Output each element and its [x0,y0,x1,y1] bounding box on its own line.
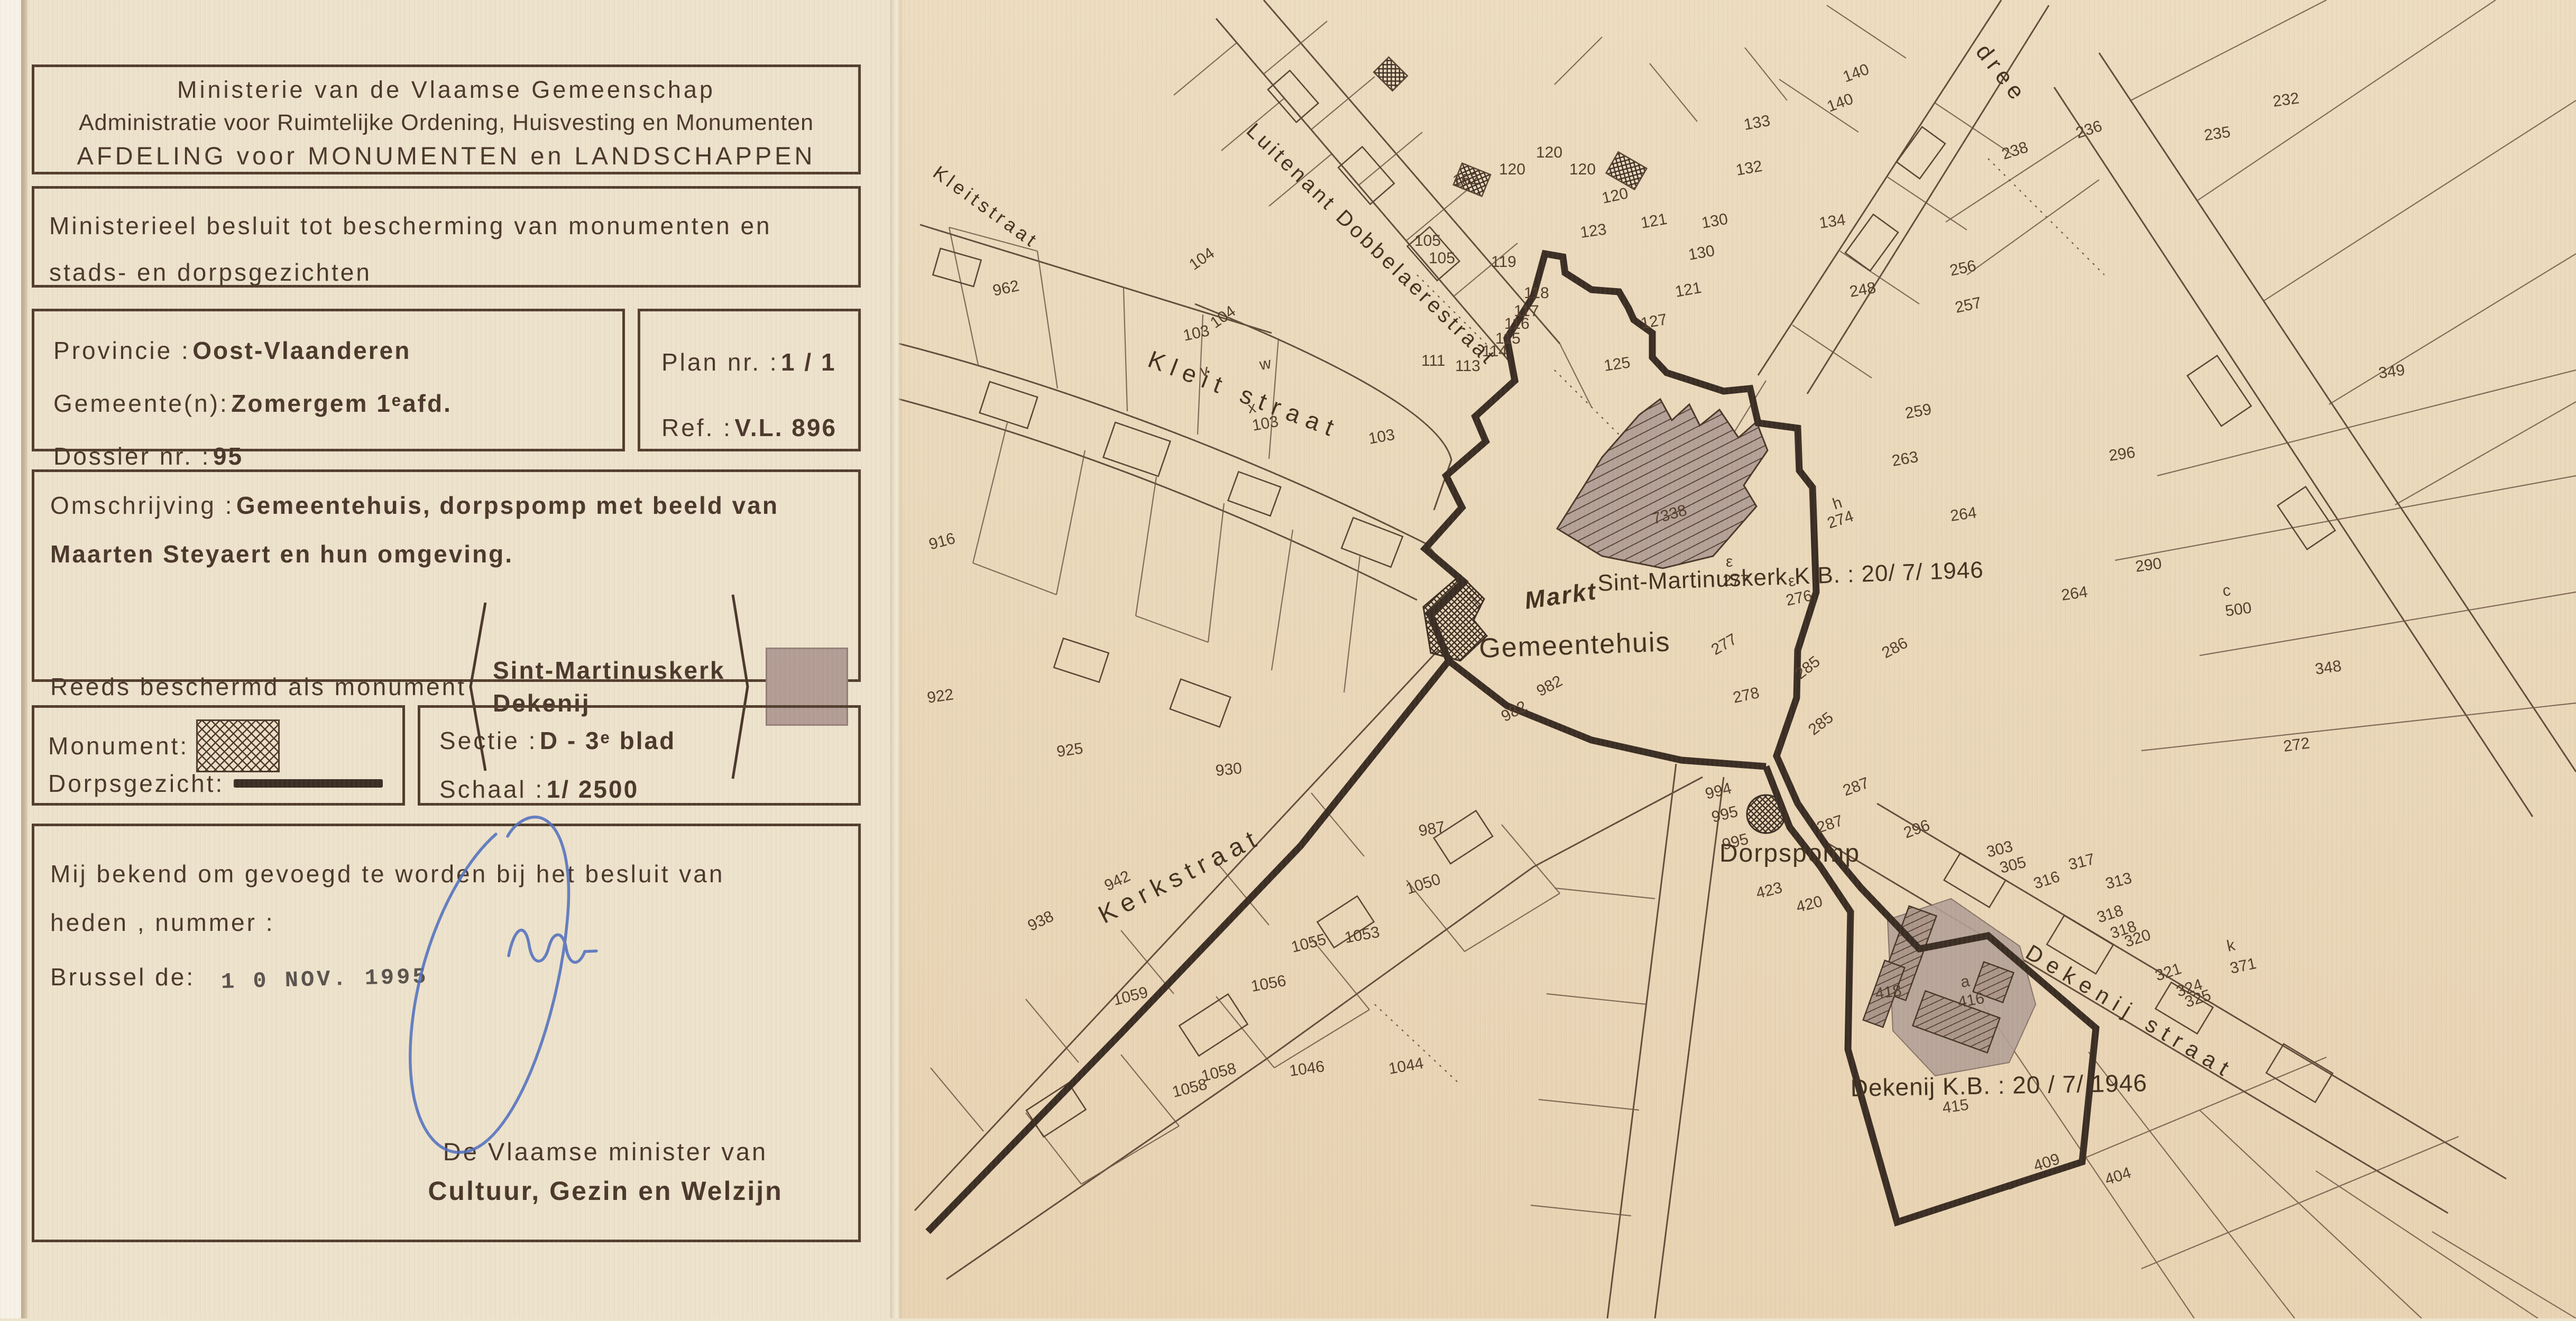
administration-title: Administratie voor Ruimtelijke Ordening,… [34,106,858,139]
ministry-title: Ministerie van de Vlaamse Gemeenschap [34,73,858,106]
parcel-number: 121 [1673,279,1703,301]
parcel-number: 132 [1734,158,1763,179]
map-label: Dorpspomp [1719,839,1860,867]
sectie-value: D - 3ᵉ blad [540,727,676,754]
cadastral-map: 916922925930103103103vwx9621041041621201… [899,0,2576,1318]
map-label: dree [1971,39,2032,108]
parcel-number: 316 [2031,868,2062,893]
parcel-number: 1046 [1288,1058,1326,1080]
municipality-label: Gemeente(n): [53,390,229,417]
parcel-number: 287 [1815,812,1845,837]
parcel-number: 995 [1710,803,1740,826]
province-label: Provincie : [53,337,190,364]
parcel-number: 278 [1732,684,1761,707]
parcel-number: 925 [1055,740,1084,761]
parcel-number: 120 [1536,144,1562,161]
parcel-number: 120 [1569,161,1596,178]
parcel-number: 348 [2314,657,2342,678]
parcel-number: 111 [1421,352,1446,369]
scanned-decree-map: 916922925930103103103vwx9621041041621201… [0,0,2576,1318]
description-value-line1: Gemeentehuis, dorpspomp met beeld van [236,492,779,519]
parcel-number: 120 [1600,184,1630,207]
parcel-number: 118 [1524,284,1549,302]
ref-label: Ref. : [661,414,732,441]
description-label: Omschrijving : [50,492,234,519]
schaal-value: 1/ 2500 [547,775,639,803]
parcel-number: 140 [1825,90,1855,115]
parcel-number: 930 [1215,760,1243,780]
parcel-number: 103 [1182,322,1211,345]
parcel-number: 125 [1603,354,1631,375]
parcel-number: 104 [1186,244,1218,274]
parcel-number: 257 [1954,294,1983,317]
parcel-number: 287 [1841,774,1871,799]
parcel-number: 248 [1848,279,1877,301]
parcel-number: 123 [1579,220,1607,242]
parcel-number: 371 [2229,955,2258,977]
dorpsgezicht-line-swatch [234,779,383,788]
parcel-number: 238 [2000,138,2030,163]
signature-box: Mij bekend om gevoegd te worden bij het … [32,824,861,1242]
parcel-number: 321 [2153,960,2184,985]
parcel-number: 103 [1367,426,1396,448]
parcel-number: 1058 [1171,1076,1209,1101]
parcel-number: 277 [1708,630,1740,659]
map-label: Kleitstraat [929,161,1043,253]
parcel-number: 162 [1452,170,1480,190]
parcel-number: 1056 [1249,972,1287,995]
parcel-number: 119 [1491,253,1516,271]
monument-hatch-swatch [196,719,280,772]
parcel-number: 962 [991,277,1021,300]
church-monument-hatch [1557,399,1768,568]
minister-line1: De Vlaamse minister van [362,1137,849,1166]
parcel-number: 105 [1429,250,1455,267]
parcel-number: w [1258,355,1273,374]
parcel-number: 120 [1499,161,1525,178]
parcel-number: c [2221,581,2231,600]
parcel-number: 235 [2203,123,2231,144]
decree-box: Ministerieel besluit tot bescherming van… [32,186,861,288]
parcel-number: 317 [2067,851,2097,874]
map-label: Gemeentehuis [1478,626,1671,664]
sectie-schaal-box: Sectie : D - 3ᵉ blad Schaal : 1/ 2500 [418,705,861,806]
protected-item-1: Sint-Martinuskerk [493,654,725,687]
parcel-number: 285 [1805,709,1837,739]
dorpsgezicht-boundary-south [1449,661,1766,766]
parcel-number: 420 [1795,893,1825,916]
buildings [933,57,2335,1137]
parcel-number: h [1830,494,1844,513]
parcel-number: 994 [1704,780,1734,803]
parcel-number: 263 [1890,448,1919,470]
map-labels: KleitstraatKleit straatLuitenant Dobbela… [929,39,2239,1102]
parcel-number: 272 [2282,734,2311,755]
parcel-number: 404 [2103,1164,2133,1189]
parcel-number: 296 [2108,444,2136,465]
parcel-number: 121 [1639,210,1668,232]
plan-label: Plan nr. : [661,348,779,376]
dossier-value: 95 [213,442,243,470]
parcel-number: 922 [926,686,954,707]
parcel-number: 500 [2224,599,2252,620]
cadastral-map-svg: 916922925930103103103vwx9621041041621201… [899,0,2576,1318]
map-label: Dekenij K.B. : 20 / 7/ 1946 [1850,1069,2147,1102]
monument-legend-label: Monument: [48,732,189,760]
parcel-number: 313 [2104,870,2134,893]
parcel-number: 418 [1874,982,1902,1003]
parcel-number: 232 [2271,89,2300,110]
description-box: Omschrijving : Gemeentehuis, dorpspomp m… [32,469,861,682]
date-stamp: 1 0 NOV. 1995 [220,964,429,995]
parcel-number: 130 [1700,210,1729,232]
decree-line1: Ministerieel besluit tot bescherming van… [49,202,858,249]
description-value-line2: Maarten Steyaert en hun omgeving. [50,540,513,568]
parcel-number: 104 [1207,302,1239,332]
parcel-number: 286 [1879,634,1911,662]
map-label: Kleit straat [1144,345,1344,444]
parcel-number: 236 [2074,117,2104,142]
parcel-number: 130 [1687,242,1716,264]
header-box: Ministerie van de Vlaamse Gemeenschap Ad… [32,64,861,174]
parcel-number: k [2225,936,2238,955]
brussel-label: Brussel de: [50,963,195,991]
title-block-panel: Ministerie van de Vlaamse Gemeenschap Ad… [0,0,899,1318]
parcel-number: 256 [1948,257,1978,280]
dorpsgezicht-legend-label: Dorpsgezicht: [48,769,224,798]
parcel-number: 938 [1025,908,1056,935]
parcel-number: 264 [1949,504,1977,525]
paper-fold-crease [890,0,902,1318]
dossier-label: Dossier nr. : [53,442,210,470]
map-legend-box: Monument: Dorpsgezicht: [32,705,405,806]
parcel-number: 1050 [1404,871,1443,898]
parcel-number: 1044 [1387,1055,1424,1078]
parcel-number: 987 [1417,818,1446,840]
sectie-label: Sectie : [439,727,537,754]
parcel-number: 982 [1534,672,1566,700]
parcel-numbers: 916922925930103103103vwx9621041041621201… [926,60,2406,1188]
province-box: Provincie : Oost-Vlaanderen Gemeente(n):… [32,309,625,451]
protected-label: Reeds beschermd als monument [50,672,466,701]
note-line2: heden , nummer : [50,898,858,947]
parcel-number: 423 [1754,879,1784,902]
parcel-number: 117 [1514,302,1539,320]
minister-line2: Cultuur, Gezin en Welzijn [362,1176,849,1206]
ref-value: V.L. 896 [734,414,837,441]
decree-line2: stads- en dorpsgezichten [49,249,858,295]
parcel-number: 290 [2134,555,2163,576]
parcel-number: 916 [927,530,957,553]
note-line1: Mij bekend om gevoegd te worden bij het … [50,849,858,898]
schaal-label: Schaal : [439,775,544,803]
municipality-value: Zomergem 1ᵉafd. [231,390,452,417]
plan-ref-box: Plan nr. : 1 / 1 Ref. : V.L. 896 [638,309,861,451]
province-value: Oost-Vlaanderen [192,337,411,364]
parcel-number: 127 [1639,311,1668,332]
minister-block: De Vlaamse minister van Cultuur, Gezin e… [362,1137,849,1206]
parcel-number: 1053 [1343,923,1381,947]
parcel-number: 105 [1414,232,1441,250]
parcel-number: 259 [1903,401,1933,422]
parcel-number: 133 [1742,112,1771,134]
parcel-number: 264 [2060,583,2089,604]
parcel-number: 349 [2377,361,2406,382]
parcel-number: 140 [1841,60,1871,86]
parcel-number: 134 [1818,211,1846,232]
department-title: AFDELING voor MONUMENTEN en LANDSCHAPPEN [34,139,858,173]
plan-value: 1 / 1 [781,348,836,376]
map-label: Markt [1523,577,1599,614]
map-label: Dekenij straat [2021,939,2239,1084]
paper-left-edge [21,0,27,1318]
scan-left-margin [0,0,21,1318]
